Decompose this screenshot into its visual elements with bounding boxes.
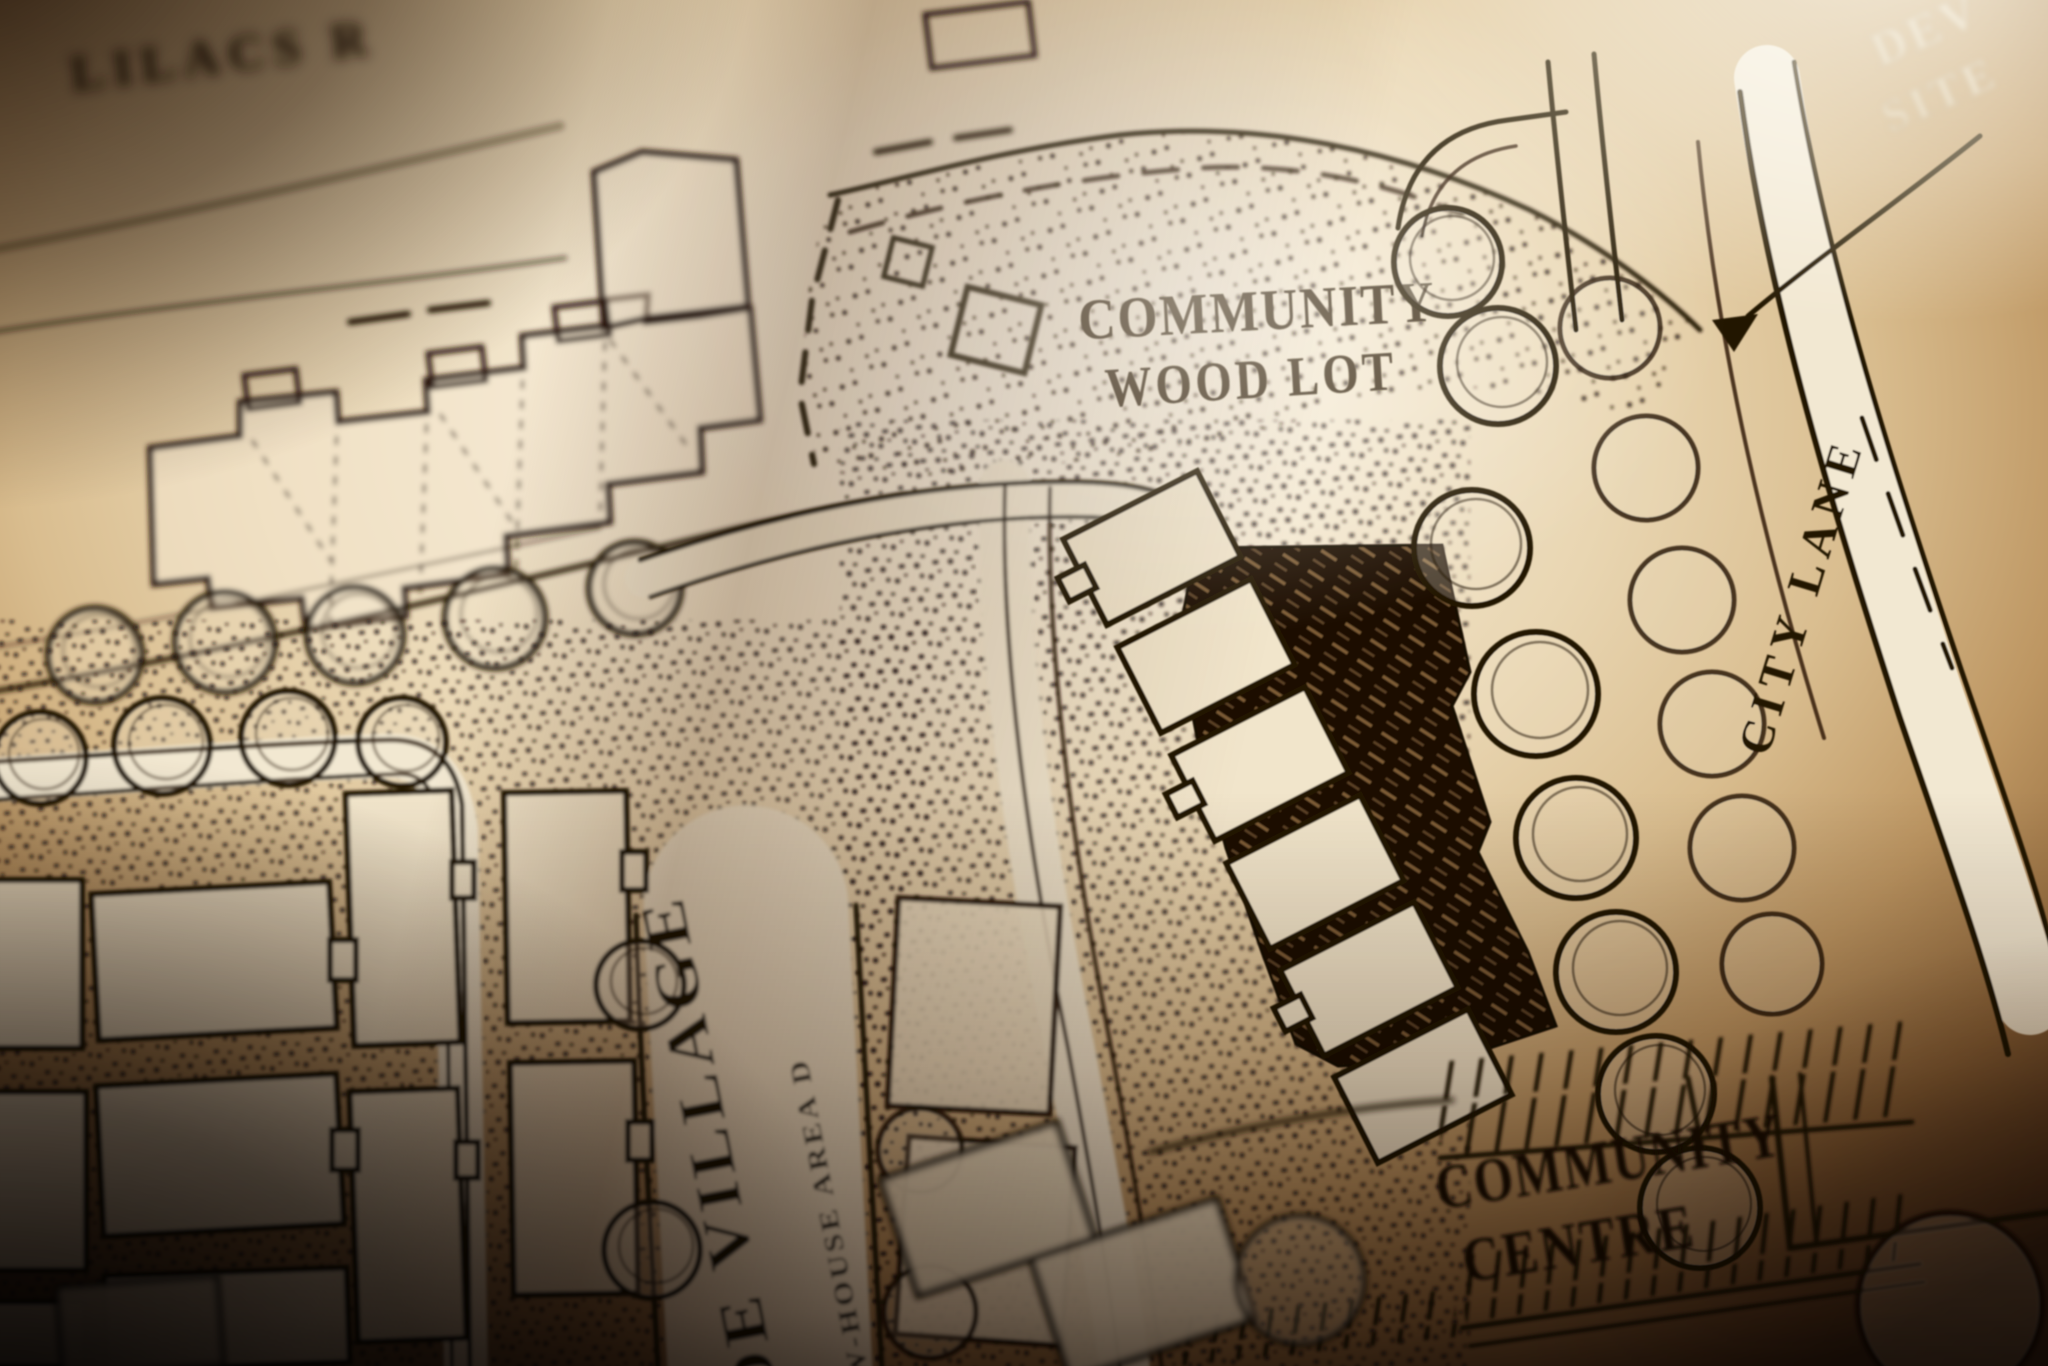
site-plan-photo: LILACS R <box>0 0 2048 1366</box>
small-pad-outline <box>925 2 1035 68</box>
site-plan-drawing: LILACS R <box>0 0 2048 1366</box>
dev-site-annotation: DEV SITE <box>1863 0 2006 142</box>
city-lane-label: CITY LANE <box>1729 430 1875 761</box>
corner-blurred-label: LILACS R <box>67 9 378 102</box>
